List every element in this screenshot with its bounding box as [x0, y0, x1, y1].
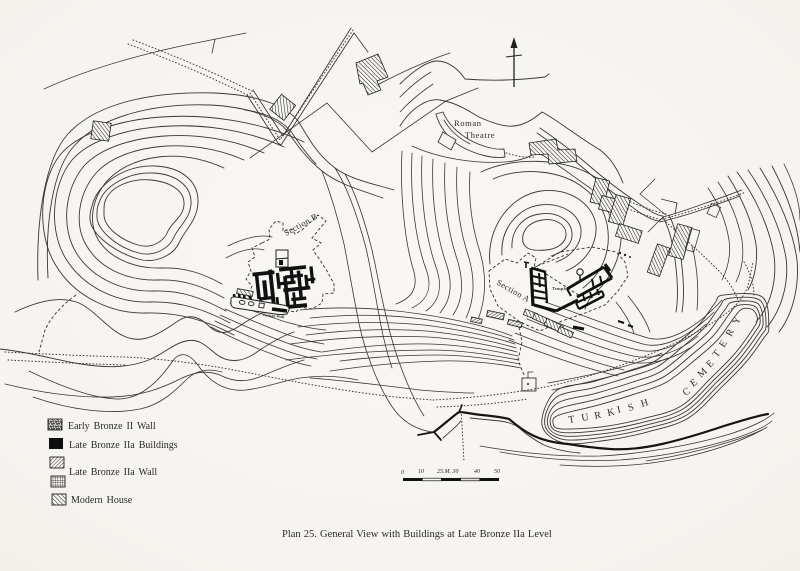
svg-text:Theatre: Theatre [465, 130, 495, 140]
svg-text:10: 10 [418, 469, 424, 475]
svg-text:Late Bronze IIa Buildings: Late Bronze IIa Buildings [69, 440, 178, 451]
svg-text:25.M. 30: 25.M. 30 [437, 469, 459, 475]
svg-text:Temple: Temple [552, 286, 568, 291]
svg-text:Plan 25. General View with Bui: Plan 25. General View with Buildings at … [282, 529, 552, 540]
svg-text:50: 50 [494, 469, 500, 475]
svg-text:Early Bronze II Wall: Early Bronze II Wall [68, 421, 156, 432]
svg-text:Modern House: Modern House [71, 495, 133, 506]
svg-text:0: 0 [401, 470, 404, 476]
svg-text:Late Bronze IIa Wall: Late Bronze IIa Wall [69, 467, 157, 478]
svg-text:40: 40 [474, 468, 480, 475]
svg-text:Roman: Roman [454, 118, 482, 128]
